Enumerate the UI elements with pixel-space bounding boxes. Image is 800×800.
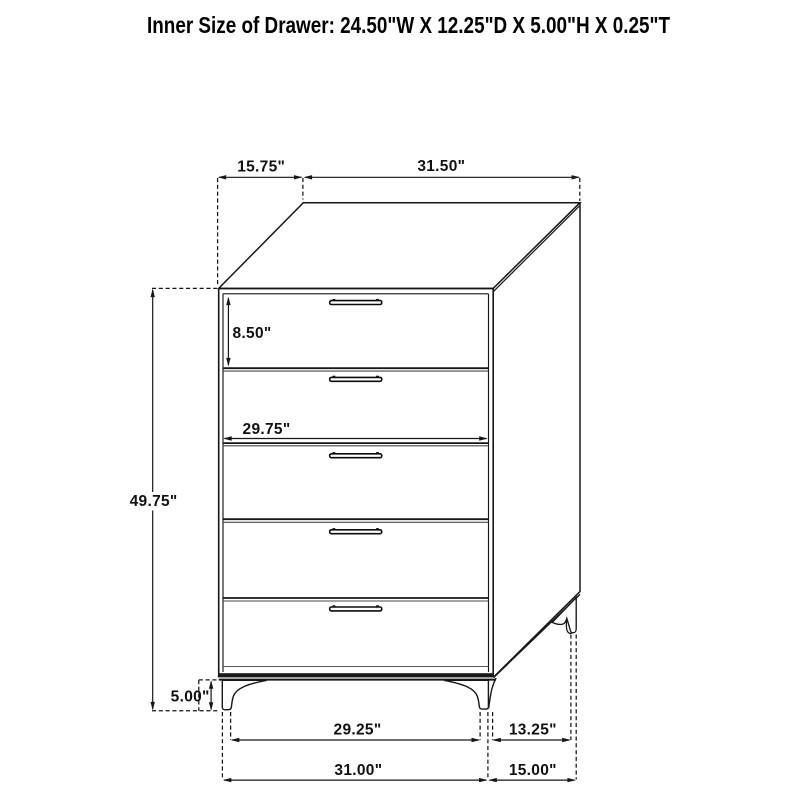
svg-text:49.75": 49.75" bbox=[130, 493, 178, 510]
svg-text:5.00": 5.00" bbox=[171, 689, 210, 706]
svg-text:8.50": 8.50" bbox=[233, 325, 272, 342]
svg-text:15.00": 15.00" bbox=[509, 762, 557, 779]
svg-text:15.75": 15.75" bbox=[237, 158, 285, 175]
svg-text:13.25": 13.25" bbox=[509, 722, 557, 739]
svg-text:31.50": 31.50" bbox=[417, 158, 465, 175]
svg-text:29.75": 29.75" bbox=[243, 421, 291, 438]
svg-text:29.25": 29.25" bbox=[334, 722, 382, 739]
svg-text:31.00": 31.00" bbox=[334, 762, 382, 779]
